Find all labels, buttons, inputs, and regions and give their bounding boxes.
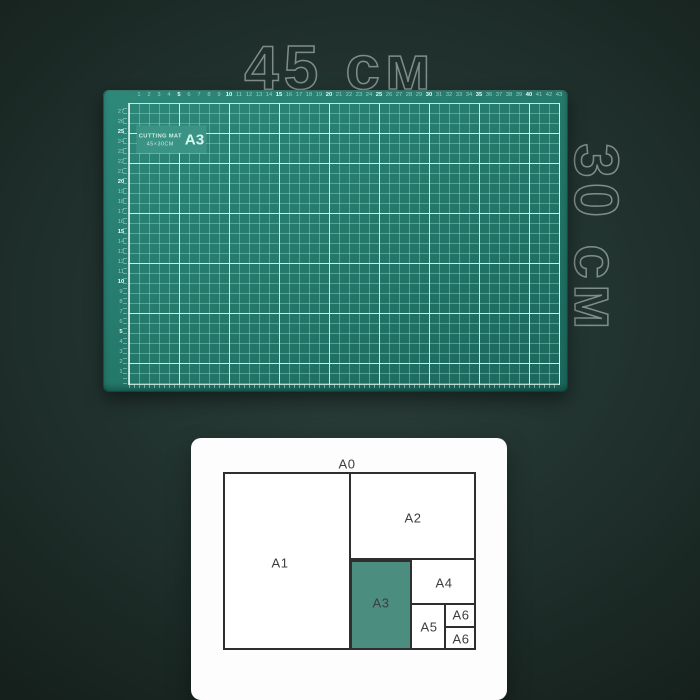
top-ruler-number: 3 bbox=[157, 92, 160, 98]
paper-size-a0-label: A0 bbox=[339, 457, 356, 472]
paper-size-a4-label: A4 bbox=[436, 576, 453, 591]
top-ruler-number: 7 bbox=[197, 92, 200, 98]
top-ruler-number: 30 bbox=[426, 92, 432, 98]
mat-bottom-ticks bbox=[129, 384, 559, 388]
top-ruler-number: 17 bbox=[296, 92, 302, 98]
top-ruler-number: 34 bbox=[466, 92, 472, 98]
top-ruler-number: 6 bbox=[187, 92, 190, 98]
top-ruler-number: 2 bbox=[147, 92, 150, 98]
top-ruler-number: 41 bbox=[536, 92, 542, 98]
top-ruler-number: 27 bbox=[396, 92, 402, 98]
top-ruler-number: 23 bbox=[356, 92, 362, 98]
top-ruler-number: 36 bbox=[486, 92, 492, 98]
top-ruler-number: 8 bbox=[207, 92, 210, 98]
top-ruler-number: 43 bbox=[556, 92, 562, 98]
paper-size-a6-bottom-label: A6 bbox=[453, 632, 470, 647]
paper-size-card: A0 A1 A2 A3 A4 A5 A6 A6 bbox=[191, 438, 507, 700]
top-ruler-number: 1 bbox=[137, 92, 140, 98]
top-ruler-number: 4 bbox=[167, 92, 170, 98]
height-dimension-label: 30 см bbox=[569, 128, 631, 350]
top-ruler-number: 33 bbox=[456, 92, 462, 98]
top-ruler-number: 9 bbox=[217, 92, 220, 98]
top-ruler-number: 40 bbox=[526, 92, 532, 98]
paper-size-a5-label: A5 bbox=[421, 620, 438, 635]
top-ruler-number: 20 bbox=[326, 92, 332, 98]
mat-label-dimensions: 45×30CM bbox=[139, 140, 182, 146]
top-ruler-number: 32 bbox=[446, 92, 452, 98]
top-ruler-number: 10 bbox=[226, 92, 232, 98]
top-ruler-number: 37 bbox=[496, 92, 502, 98]
top-ruler-number: 5 bbox=[177, 92, 180, 98]
paper-size-a2-label: A2 bbox=[405, 511, 422, 526]
paper-size-a3-label: A3 bbox=[373, 596, 390, 611]
divider-a6-a6 bbox=[444, 626, 476, 628]
top-ruler-number: 18 bbox=[306, 92, 312, 98]
top-ruler-number: 22 bbox=[346, 92, 352, 98]
top-ruler-number: 42 bbox=[546, 92, 552, 98]
mat-top-ruler: 1234567891011121314151617181920212223242… bbox=[129, 92, 559, 102]
mat-label-size: A3 bbox=[185, 130, 204, 148]
mat-label-title: CUTTING MAT bbox=[139, 133, 182, 139]
top-ruler-number: 29 bbox=[416, 92, 422, 98]
top-ruler-number: 39 bbox=[516, 92, 522, 98]
top-ruler-number: 26 bbox=[386, 92, 392, 98]
top-ruler-number: 14 bbox=[266, 92, 272, 98]
top-ruler-number: 25 bbox=[376, 92, 382, 98]
paper-size-a1-label: A1 bbox=[272, 556, 289, 571]
top-ruler-number: 13 bbox=[256, 92, 262, 98]
mat-label-content: CUTTING MAT 45×30CM A3 bbox=[137, 126, 206, 153]
mat-label-text: CUTTING MAT 45×30CM bbox=[139, 133, 182, 146]
cutting-mat: 1234567891011121314151617181920212223242… bbox=[103, 90, 568, 392]
mat-label-badge: CUTTING MAT 45×30CM A3 bbox=[137, 126, 206, 153]
mat-left-ticks bbox=[123, 104, 127, 384]
top-ruler-number: 24 bbox=[366, 92, 372, 98]
top-ruler-number: 28 bbox=[406, 92, 412, 98]
top-ruler-number: 19 bbox=[316, 92, 322, 98]
top-ruler-number: 15 bbox=[276, 92, 282, 98]
top-ruler-number: 35 bbox=[476, 92, 482, 98]
top-ruler-number: 12 bbox=[246, 92, 252, 98]
top-ruler-number: 11 bbox=[236, 92, 242, 98]
top-ruler-number: 38 bbox=[506, 92, 512, 98]
top-ruler-number: 16 bbox=[286, 92, 292, 98]
paper-size-a6-top-label: A6 bbox=[453, 608, 470, 623]
product-photo-stage: 45 см 30 см 1234567891011121314151617181… bbox=[0, 0, 700, 700]
top-ruler-number: 31 bbox=[436, 92, 442, 98]
top-ruler-number: 21 bbox=[336, 92, 342, 98]
